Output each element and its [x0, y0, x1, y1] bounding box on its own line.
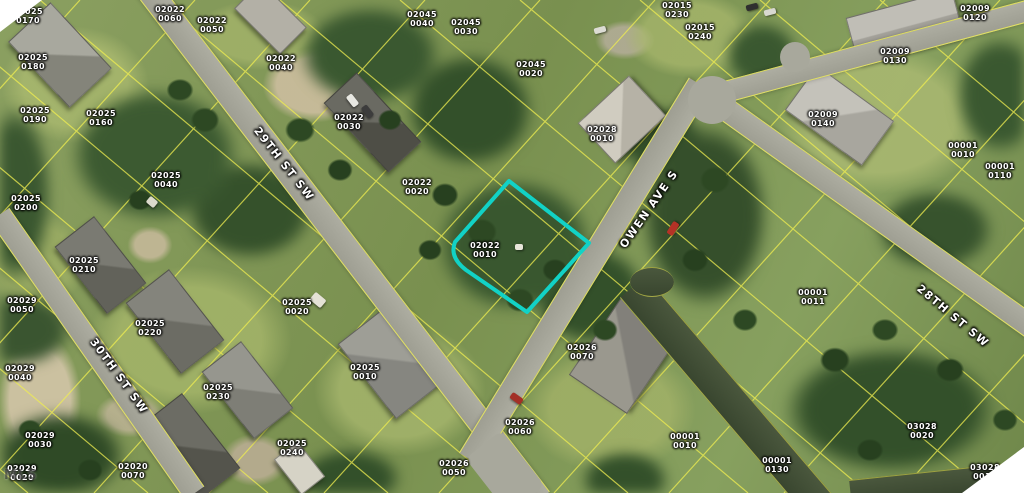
street-name-label: 30TH ST SW [87, 336, 151, 417]
mls-watermark: MLS [4, 468, 38, 483]
street-name-label: OWEN AVE S [617, 167, 681, 250]
street-name-label: 29TH ST SW [251, 124, 317, 203]
street-label-layer: 29TH ST SW30TH ST SWOWEN AVE S28TH ST SW [0, 0, 1024, 493]
street-name-label: 28TH ST SW [914, 282, 991, 350]
aerial-parcel-photo[interactable]: 02025 017002025 018002025 019002025 0160… [0, 0, 1024, 493]
